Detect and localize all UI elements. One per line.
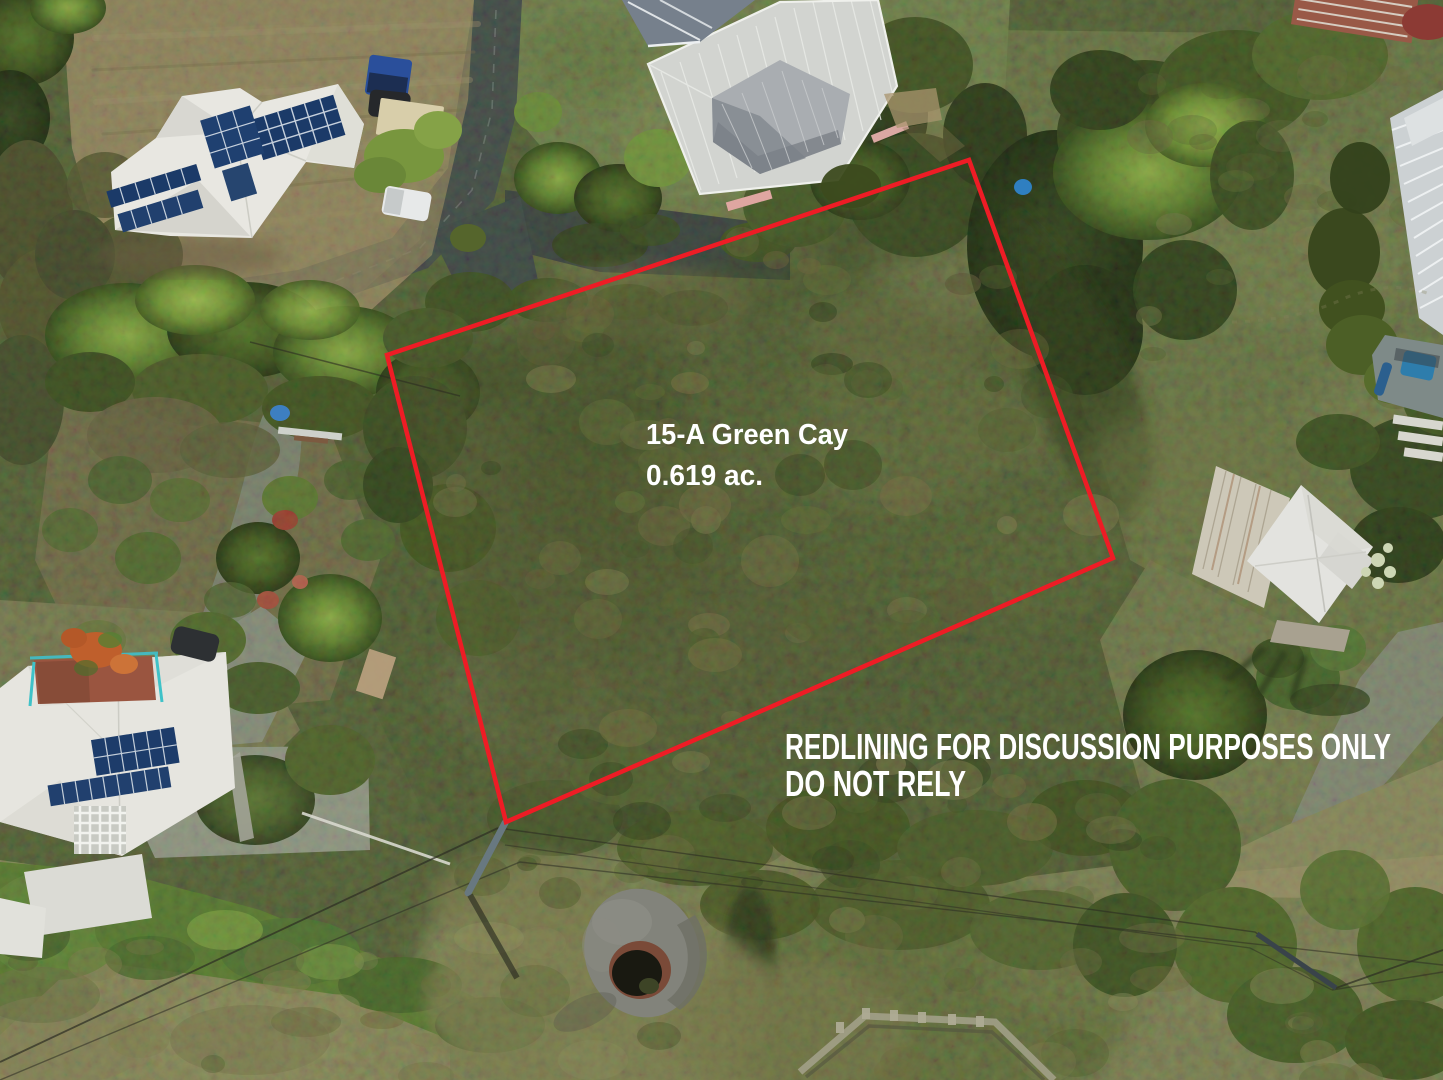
svg-text:DO NOT RELY: DO NOT RELY	[785, 763, 966, 804]
svg-text:REDLINING FOR DISCUSSION PURPO: REDLINING FOR DISCUSSION PURPOSES ONLY	[785, 726, 1391, 767]
svg-text:0.619 ac.: 0.619 ac.	[646, 460, 763, 492]
svg-text:15-A Green Cay: 15-A Green Cay	[646, 419, 848, 451]
